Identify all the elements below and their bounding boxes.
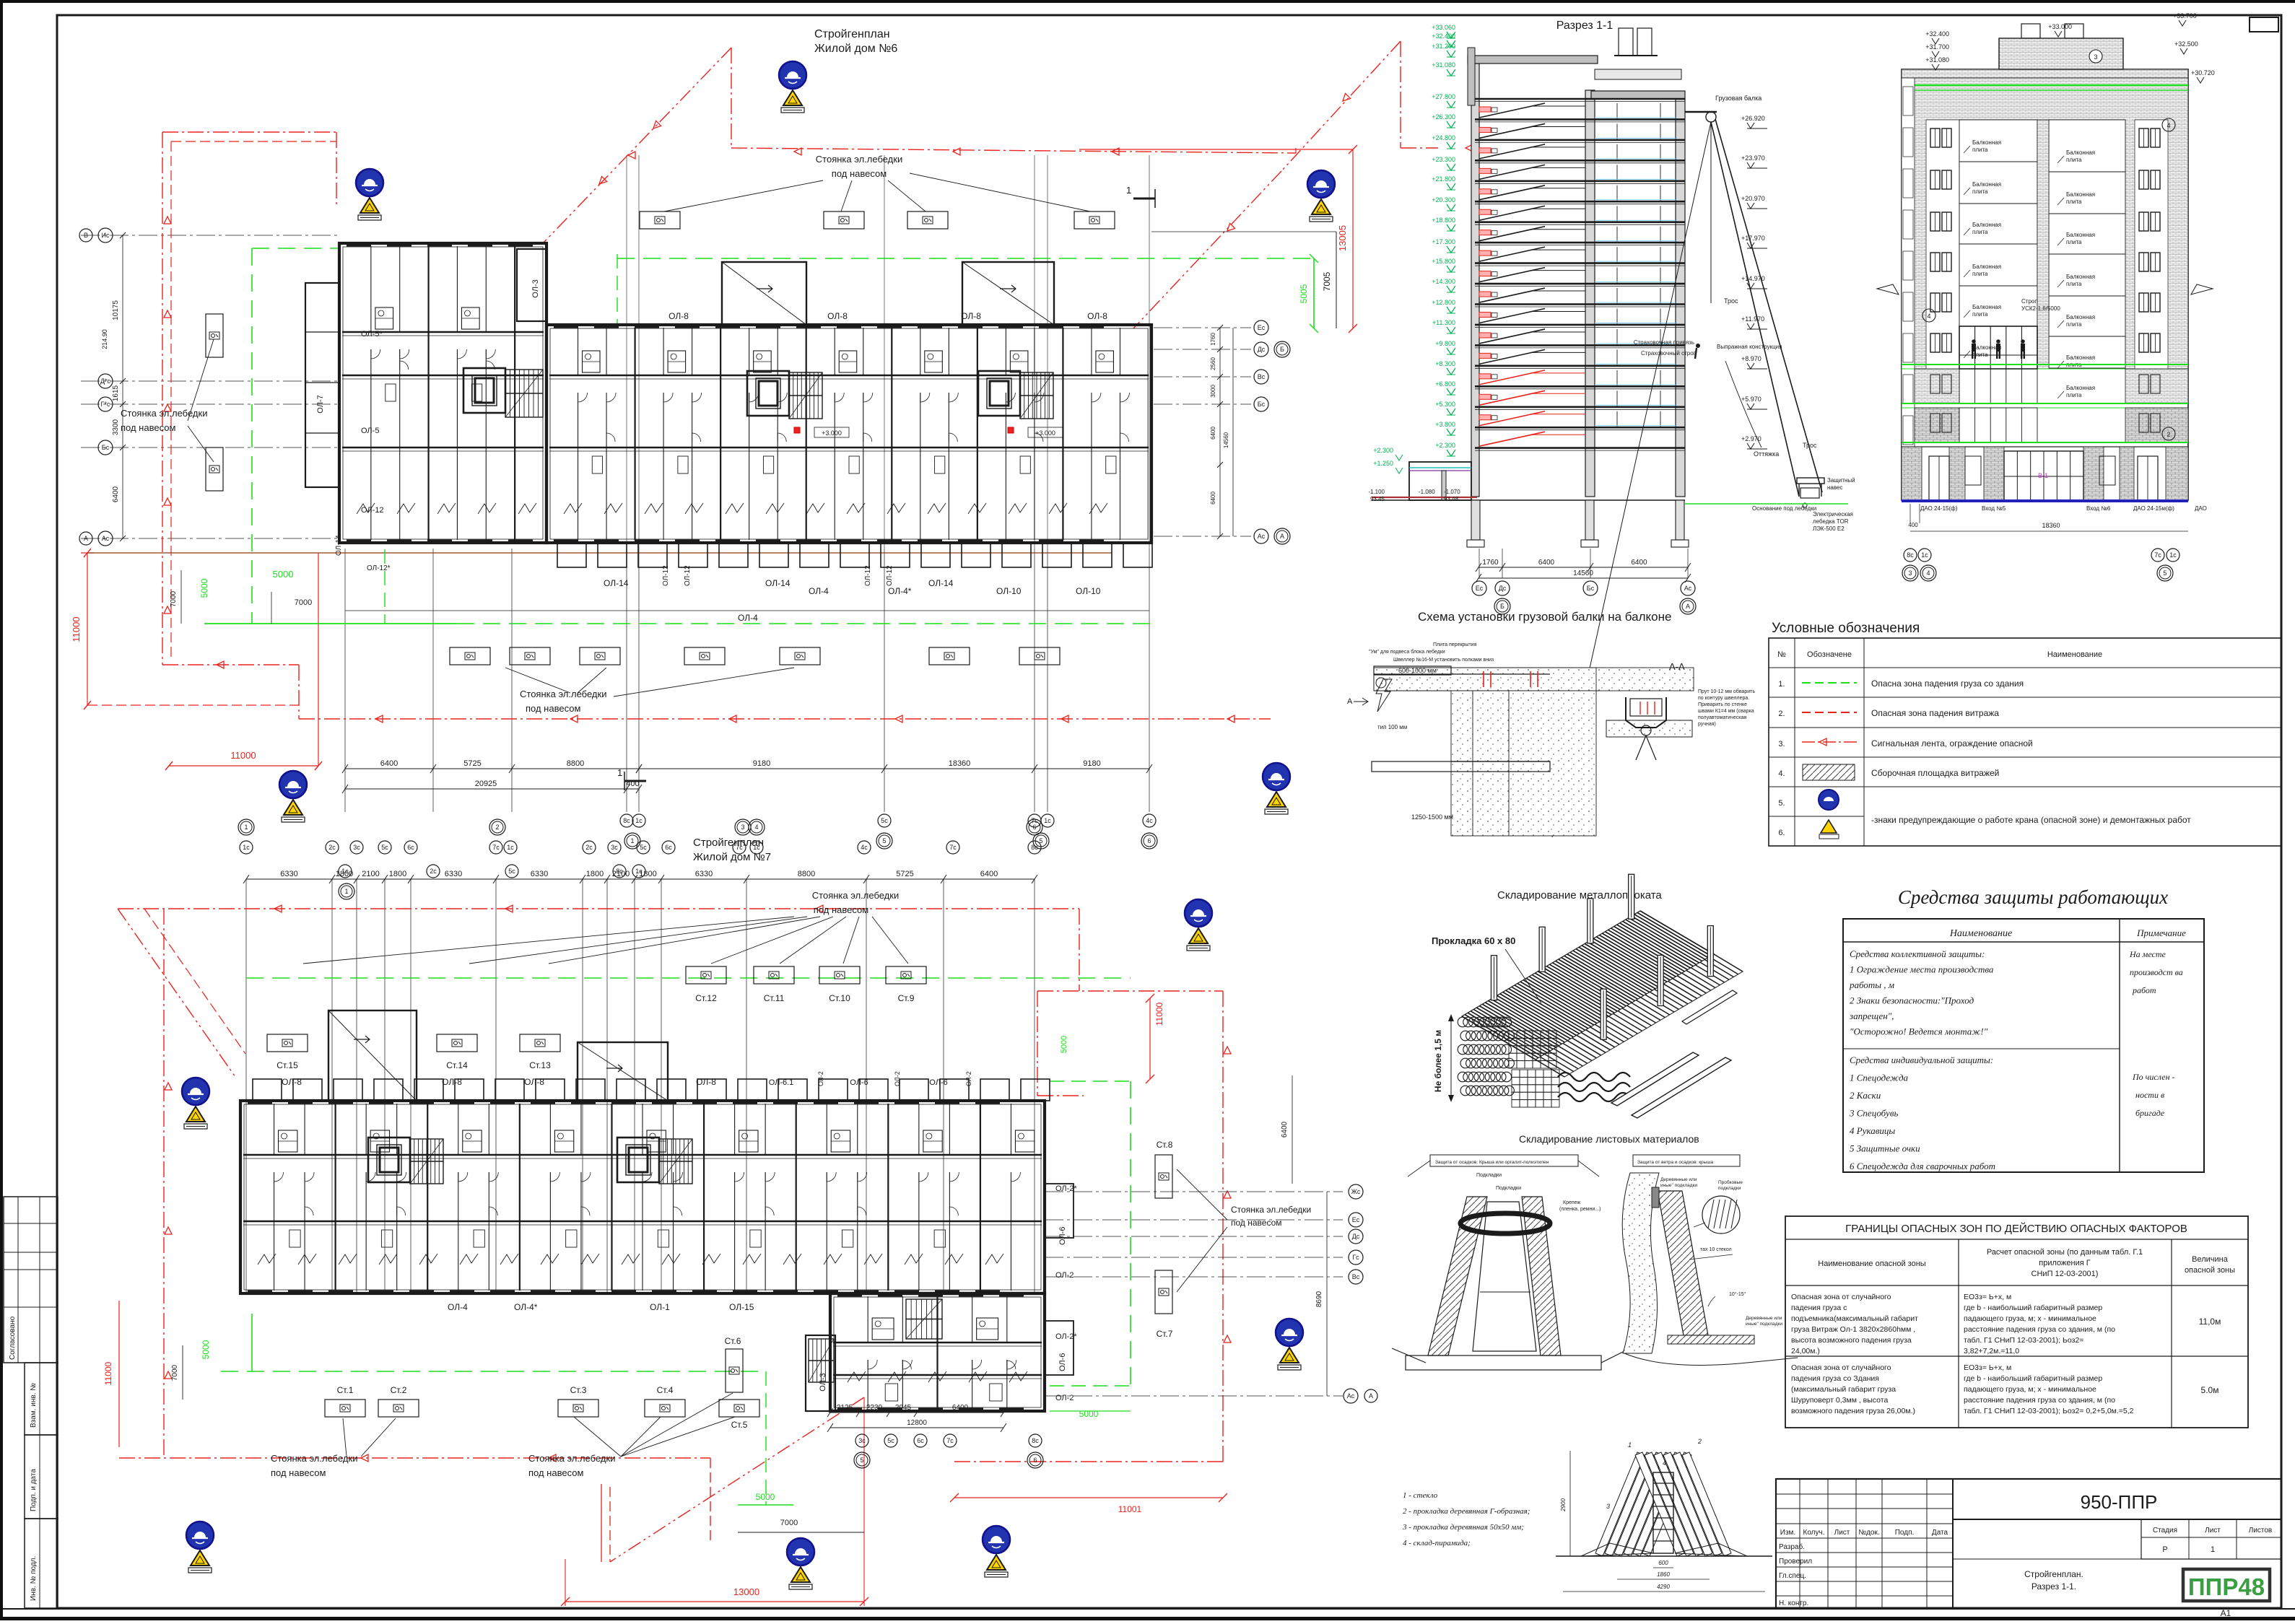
svg-text:Наименование опасной зоны: Наименование опасной зоны [1818,1260,1926,1268]
svg-text:9180: 9180 [753,759,770,768]
svg-text:5.: 5. [1778,799,1785,808]
svg-text:под навесом: под навесом [121,422,175,433]
svg-text:Складирование листовых материа: Складирование листовых материалов [1519,1133,1699,1145]
svg-text:4с: 4с [861,844,868,851]
svg-text:5000: 5000 [1060,1036,1068,1053]
svg-text:ОЛ-2: ОЛ-2 [1055,1394,1074,1402]
svg-text:под навесом: под навесом [528,1467,583,1478]
svg-text:лебедка TOR: лебедка TOR [1813,518,1849,525]
svg-text:5с: 5с [508,868,515,875]
svg-text:1250-1500 мм: 1250-1500 мм [1411,813,1453,821]
svg-text:2100: 2100 [612,870,630,878]
svg-text:+32.500: +32.500 [2174,40,2198,48]
svg-text:опасной зоны: опасной зоны [2185,1266,2235,1275]
svg-text:под навесом: под навесом [832,168,887,179]
svg-text:(максимальный габарит груза: (максимальный габарит груза [1791,1385,1896,1394]
svg-text:+3.800: +3.800 [1435,421,1455,428]
svg-text:падения груза со Здания: падения груза со Здания [1791,1374,1879,1383]
svg-text:ОЛ-2: ОЛ-2 [965,1071,972,1086]
svg-text:+14.300: +14.300 [1432,278,1455,285]
svg-text:7000: 7000 [295,598,312,607]
svg-text:13000: 13000 [733,1586,759,1597]
svg-text:+33.700: +33.700 [2173,12,2197,19]
svg-text:под навесом: под навесом [814,904,868,915]
svg-text:Защита от ветра и осадков: кры: Защита от ветра и осадков: крыша [1637,1160,1714,1165]
svg-text:Приварить по стенке: Приварить по стенке [1698,702,1747,707]
svg-text:Гл.спец.: Гл.спец. [1779,1572,1806,1580]
svg-text:Ас: Ас [1258,533,1266,540]
svg-text:Опасная зона от случайного: Опасная зона от случайного [1791,1293,1891,1301]
svg-text:93.48: 93.48 [1444,496,1459,502]
svg-text:Не более 1,5 м: Не более 1,5 м [1433,1030,1443,1092]
svg-text:В: В [84,232,88,239]
svg-text:Балконная: Балконная [2066,149,2095,156]
svg-text:1800: 1800 [389,870,406,878]
svg-text:высота возможного падения груз: высота возможного падения груза [1791,1336,1912,1345]
svg-text:1с: 1с [753,844,760,851]
svg-text:2с: 2с [430,868,437,875]
svg-text:Наименование: Наименование [2047,650,2102,659]
svg-text:1: 1 [630,837,634,844]
svg-text:4: 4 [1663,1459,1666,1467]
svg-text:Балконная: Балконная [1972,304,2001,310]
svg-text:Средства коллективной защиты:: Средства коллективной защиты: [1850,948,1985,959]
svg-text:2с: 2с [585,844,593,851]
svg-text:ОЛ-3: ОЛ-3 [531,279,540,297]
svg-text:Ст.11: Ст.11 [764,993,785,1003]
svg-text:5000: 5000 [1079,1409,1099,1419]
svg-text:600-1000 мм: 600-1000 мм [1398,667,1437,674]
svg-text:5.0м: 5.0м [2201,1385,2219,1395]
svg-text:плита: плита [2066,392,2082,398]
svg-text:+31.080: +31.080 [1432,61,1455,69]
svg-text:Деревянные или: Деревянные или [1660,1177,1697,1182]
svg-text:Наименование: Наименование [1949,928,2012,939]
svg-text:А: А [1347,697,1353,706]
svg-text:6.: 6. [1778,829,1785,837]
svg-text:ОЛ-4*: ОЛ-4* [888,586,912,596]
svg-text:6400: 6400 [1210,427,1216,440]
svg-text:А: А [1280,533,1284,540]
svg-text:+2.300: +2.300 [1373,447,1393,454]
svg-text:+24.800: +24.800 [1432,134,1455,141]
svg-text:Б: Б [1280,346,1284,353]
svg-text:600: 600 [1658,1560,1668,1566]
svg-text:где b - наибольший габаритный: где b - наибольший габаритный размер [1964,1374,2102,1383]
svg-text:4: 4 [754,824,758,831]
svg-text:Ст.6: Ст.6 [725,1336,741,1346]
svg-text:ОЛ-4: ОЛ-4 [738,613,758,623]
svg-text:УСК2-1,6/5000: УСК2-1,6/5000 [2021,305,2060,312]
svg-text:Защита от осадков: Крыша или о: Защита от осадков: Крыша или оргалит-пол… [1435,1160,1549,1165]
svg-text:5725: 5725 [463,759,481,768]
svg-text:5000: 5000 [199,578,209,598]
svg-text:5 Защитные очки: 5 Защитные очки [1850,1143,1920,1154]
svg-text:Стоянка эл.лебедки: Стоянка эл.лебедки [271,1453,357,1464]
svg-text:Н. контр.: Н. контр. [1779,1599,1808,1607]
svg-text:11000: 11000 [71,616,82,642]
svg-text:Условные обозначения: Условные обозначения [1772,621,1920,636]
svg-text:2с: 2с [328,844,336,851]
svg-text:+11.300: +11.300 [1432,319,1455,326]
svg-text:6400: 6400 [1210,492,1216,505]
svg-text:+15.800: +15.800 [1432,258,1455,265]
svg-text:Средства защиты работающих: Средства защиты работающих [1898,886,2168,908]
svg-text:9180: 9180 [1083,759,1100,768]
svg-text:Разраб.: Разраб. [1779,1542,1805,1551]
svg-text:5с: 5с [881,817,888,824]
svg-text:3с: 3с [353,844,360,851]
svg-text:Балконная: Балконная [1972,222,2001,228]
svg-text:8с: 8с [1031,844,1038,851]
svg-text:6330: 6330 [280,870,297,878]
svg-text:6400: 6400 [980,870,998,878]
svg-text:1: 1 [2211,1545,2215,1554]
svg-text:Балконная: Балконная [2066,274,2095,280]
svg-text:Б: Б [1500,603,1504,610]
svg-text:1800: 1800 [639,870,656,878]
svg-text:Электрическая: Электрическая [1813,511,1853,518]
svg-text:ОЛ-14: ОЛ-14 [928,578,954,588]
svg-text:+20.300: +20.300 [1432,196,1455,204]
svg-text:ОЛ-8: ОЛ-8 [282,1077,302,1087]
svg-text:Прут 10-12 мм обварить: Прут 10-12 мм обварить [1698,689,1755,694]
svg-text:Строп: Строп [2021,298,2038,305]
svg-text:5: 5 [2163,569,2166,577]
svg-text:+8.970: +8.970 [1741,355,1761,362]
svg-text:5000: 5000 [201,1340,211,1359]
svg-text:Величина: Величина [2192,1255,2229,1264]
svg-text:2: 2 [2166,431,2170,438]
svg-text:тах 10 стекол: тах 10 стекол [1700,1247,1732,1252]
svg-text:8с: 8с [1907,551,1914,559]
svg-text:+33.000: +33.000 [2048,23,2072,30]
svg-text:Оттяжка: Оттяжка [1754,450,1779,458]
svg-text:Швеллер №16-М установить полка: Швеллер №16-М установить полками вниз [1393,658,1494,663]
svg-text:11000: 11000 [230,750,256,761]
svg-text:тип 100 мм: тип 100 мм [1377,724,1407,730]
svg-text:3.: 3. [1778,740,1785,748]
svg-text:иные" подкладки: иные" подкладки [1746,1322,1782,1327]
svg-text:ОЛ-14: ОЛ-14 [335,535,343,556]
svg-text:2125: 2125 [837,1404,853,1412]
svg-text:Грузовая балка: Грузовая балка [1715,95,1761,102]
svg-text:1с: 1с [1921,551,1928,559]
svg-text:Стоянка эл.лебедки: Стоянка эл.лебедки [1231,1205,1311,1215]
svg-text:Трос: Трос [1803,442,1817,449]
svg-text:4с: 4с [1146,817,1153,824]
svg-text:Разрез 1-1.: Разрез 1-1. [2031,1581,2076,1592]
svg-text:3000: 3000 [1210,385,1216,398]
svg-text:5с: 5с [887,1437,894,1444]
svg-text:Прокладка 60 х 80: Прокладка 60 х 80 [1432,935,1515,946]
svg-text:ОЛ-12: ОЛ-12 [886,565,894,586]
svg-text:по контуру швеллера.: по контуру швеллера. [1698,696,1749,701]
svg-text:под навесом: под навесом [271,1467,326,1478]
svg-text:950-ППР: 950-ППР [2081,1491,2158,1513]
svg-text:2 Каски: 2 Каски [1850,1090,1881,1101]
svg-text:Ст.1: Ст.1 [337,1385,354,1395]
svg-text:ручная): ручная) [1698,722,1716,727]
svg-text:работы , м: работы , м [1849,979,1894,990]
svg-text:Стоянка эл.лебедки: Стоянка эл.лебедки [121,408,207,419]
svg-text:3: 3 [741,824,744,831]
svg-text:-1.070: -1.070 [1444,489,1460,495]
svg-text:Балконная: Балконная [1972,139,2001,146]
svg-text:падения груза с: падения груза с [1791,1304,1847,1312]
svg-text:Ст.4: Ст.4 [657,1385,674,1395]
svg-text:Обозначене: Обозначене [1807,650,1852,659]
svg-text:Подп.: Подп. [1895,1529,1915,1537]
svg-text:Подкладки: Подкладки [1476,1173,1502,1178]
svg-text:7с: 7с [949,844,957,851]
svg-text:СНиП 12-03-2001): СНиП 12-03-2001) [2031,1270,2099,1278]
svg-text:ППР48: ППР48 [2188,1573,2265,1600]
svg-text:4290: 4290 [1657,1584,1670,1590]
svg-text:работ: работ [2132,985,2156,995]
svg-text:1: 1 [617,767,622,778]
svg-text:8с: 8с [623,817,630,824]
svg-text:А-А: А-А [1669,661,1685,672]
svg-text:ОЛ-1: ОЛ-1 [650,1302,670,1312]
svg-text:1615: 1615 [112,385,120,401]
svg-text:+31.200: +31.200 [1432,43,1455,50]
svg-text:6: 6 [1032,824,1036,831]
svg-text:Сигнальная лента, ограждение о: Сигнальная лента, ограждение опасной [1871,738,2033,748]
svg-text:-1.100: -1.100 [1368,489,1385,495]
svg-text:+3.000: +3.000 [1035,429,1055,437]
svg-text:Балконная: Балконная [2066,314,2095,320]
svg-text:1.: 1. [1778,680,1785,689]
svg-text:ОЛ-2: ОЛ-2 [817,1071,824,1086]
svg-text:Опасная зона от случайного: Опасная зона от случайного [1791,1363,1891,1372]
svg-text:расстояние падения груза со зд: расстояние падения груза со здания, м (п… [1964,1325,2115,1334]
svg-text:+9.800: +9.800 [1435,340,1455,347]
svg-text:5: 5 [860,1457,863,1464]
svg-text:Согласовано: Согласовано [9,1316,17,1360]
svg-text:Ес: Ес [1258,324,1266,331]
svg-text:11000: 11000 [1154,1002,1164,1026]
svg-text:Основание под лебедки: Основание под лебедки [1752,505,1816,512]
svg-text:А: А [84,535,88,542]
svg-text:ЕО3з= Ь+х, м: ЕО3з= Ь+х, м [1964,1363,2011,1372]
svg-text:ности в: ности в [2135,1090,2164,1100]
svg-text:Бс: Бс [1587,585,1595,592]
svg-text:+11.970: +11.970 [1741,315,1764,323]
svg-text:7000: 7000 [780,1519,798,1527]
svg-text:214.90: 214.90 [101,329,108,349]
svg-text:+2.300: +2.300 [1435,442,1455,449]
svg-text:18360: 18360 [949,759,971,768]
svg-text:плита: плита [1972,271,1988,277]
svg-text:5005: 5005 [1299,284,1309,303]
svg-text:4: 4 [1927,313,1930,320]
svg-text:ОЛ-6: ОЛ-6 [1058,1353,1067,1371]
svg-text:7с: 7с [2154,551,2161,559]
svg-text:Ст.9: Ст.9 [898,993,915,1003]
svg-text:навес: навес [1827,484,1842,491]
svg-text:18360: 18360 [2042,522,2060,529]
svg-text:+23.970: +23.970 [1741,154,1765,162]
svg-text:ОЛ-10: ОЛ-10 [1076,586,1101,596]
svg-text:Ис: Ис [102,232,110,239]
svg-text:ОЛ-8: ОЛ-8 [1087,311,1107,321]
svg-text:6: 6 [1033,1457,1037,1464]
svg-text:Опасна зона падения груза со з: Опасна зона падения груза со здания [1871,678,2024,689]
svg-text:По числен -: По числен - [2132,1072,2175,1082]
svg-text:2 Знаки безопасности:"Проход: 2 Знаки безопасности:"Проход [1850,995,1974,1006]
svg-text:3: 3 [1908,569,1912,577]
svg-text:ОЛ-2: ОЛ-2 [894,1071,901,1086]
svg-text:Дс: Дс [1499,585,1507,592]
svg-text:подъемника(максимальный габари: подъемника(максимальный габарит [1791,1314,1918,1323]
svg-text:6330: 6330 [531,870,548,878]
svg-text:ОЛ-8: ОЛ-8 [669,311,689,321]
svg-text:Колуч.: Колуч. [1803,1529,1825,1537]
svg-text:полуавтоматическая: полуавтоматическая [1698,715,1746,720]
svg-text:Схема установки грузовой балки: Схема установки грузовой балки на балкон… [1418,610,1671,624]
svg-text:Изм.: Изм. [1780,1529,1795,1537]
svg-text:1760: 1760 [1210,333,1216,346]
svg-text:Примечание: Примечание [2136,927,2186,938]
svg-text:+5.300: +5.300 [1435,401,1455,408]
svg-text:ОЛ-2: ОЛ-2 [1055,1271,1074,1280]
svg-text:20925: 20925 [475,780,497,788]
svg-text:плита: плита [2066,321,2082,328]
svg-text:Ас: Ас [102,535,110,542]
svg-text:1с: 1с [243,844,250,851]
svg-text:ОЛ-8: ОЛ-8 [524,1077,544,1087]
svg-text:На месте: На месте [2129,949,2166,959]
svg-text:+17.970: +17.970 [1741,235,1765,242]
svg-text:1 Спецодежда: 1 Спецодежда [1850,1073,1909,1083]
svg-text:1с: 1с [635,817,643,824]
svg-text:Расчет опасной зоны (по данным: Расчет опасной зоны (по данным табл. Г.1 [1987,1248,2143,1257]
svg-text:5: 5 [882,837,886,844]
svg-text:8690: 8690 [1315,1291,1323,1307]
svg-text:плита: плита [2066,198,2082,205]
svg-text:6400: 6400 [380,759,398,768]
svg-text:+18.800: +18.800 [1432,217,1455,224]
svg-text:Ст.5: Ст.5 [731,1420,748,1430]
svg-text:+30.720: +30.720 [2191,69,2215,77]
svg-text:плита: плита [1972,188,1988,195]
svg-text:Балконная: Балконная [2066,232,2095,238]
svg-text:ОЛ-4: ОЛ-4 [809,586,829,596]
svg-text:Балконная: Балконная [2066,191,2095,198]
svg-text:плита: плита [1972,229,1988,235]
svg-text:производст ва: производст ва [2130,967,2183,977]
svg-text:5725: 5725 [896,870,913,878]
svg-text:ГРАНИЦЫ ОПАСНЫХ ЗОН ПО ДЕЙСТВИ: ГРАНИЦЫ ОПАСНЫХ ЗОН ПО ДЕЙСТВИЮ ОПАСНЫХ … [1845,1222,2187,1235]
svg-text:7000: 7000 [170,590,178,607]
svg-text:груза Витраж Ол-1 3820х2860hмм: груза Витраж Ол-1 3820х2860hмм , [1791,1325,1915,1334]
svg-text:ЕО3з= Ь+х, м: ЕО3з= Ь+х, м [1964,1293,2011,1301]
svg-text:1: 1 [244,824,248,831]
svg-text:плита: плита [1972,147,1988,153]
svg-text:ОЛ-12: ОЛ-12 [864,565,872,586]
svg-text:1760: 1760 [1482,559,1499,567]
svg-text:10°-15°: 10°-15° [1729,1291,1746,1297]
svg-text:Разрез 1-1: Разрез 1-1 [1556,19,1614,32]
svg-text:-1.080: -1.080 [1419,489,1435,495]
svg-text:ОЛ-6.1: ОЛ-6.1 [769,1078,794,1087]
svg-text:Гс: Гс [1352,1254,1359,1261]
svg-text:6330: 6330 [445,870,462,878]
svg-text:2230: 2230 [866,1404,883,1412]
svg-text:ОЛ-8: ОЛ-8 [827,311,848,321]
svg-text:7000: 7000 [171,1364,179,1381]
svg-text:Стоянка эл.лебедки: Стоянка эл.лебедки [528,1453,615,1464]
svg-text:Ст.14: Ст.14 [446,1060,468,1070]
svg-text:Ст.8: Ст.8 [1157,1140,1173,1150]
svg-text:+12.800: +12.800 [1432,299,1455,306]
svg-text:1: 1 [1126,185,1131,196]
svg-text:1с: 1с [507,844,514,851]
svg-text:ОЛ-4: ОЛ-4 [448,1302,468,1312]
svg-text:3с: 3с [858,1437,866,1444]
svg-text:+31.080: +31.080 [1925,56,1949,64]
svg-text:швами К1=4 мм (сварка: швами К1=4 мм (сварка [1698,709,1754,714]
svg-text:+32.400: +32.400 [1925,30,1949,38]
svg-text:запрещен",: запрещен", [1849,1010,1894,1021]
svg-text:5с: 5с [381,844,388,851]
svg-text:ДАО 24-15(ф): ДАО 24-15(ф) [1920,505,1958,512]
svg-text:Ес: Ес [1476,585,1484,592]
svg-text:ДАО 24-15м(ф): ДАО 24-15м(ф) [2133,505,2174,512]
svg-text:ОЛ-15: ОЛ-15 [729,1302,754,1312]
svg-text:7005: 7005 [1322,271,1332,291]
svg-text:Д*с: Д*с [100,377,111,385]
svg-text:А: А [1686,603,1690,610]
svg-text:6: 6 [1147,837,1151,844]
svg-text:5с: 5с [640,844,647,851]
svg-text:+1.250: +1.250 [1373,460,1393,467]
svg-text:ОЛ-14: ОЛ-14 [765,578,791,588]
svg-text:Вс: Вс [1258,373,1266,380]
svg-text:ОЛ-8: ОЛ-8 [442,1077,462,1087]
svg-text:ОЛ-6: ОЛ-6 [1058,1227,1067,1245]
svg-text:1с: 1с [1044,817,1051,824]
svg-text:расстояние падения груза со зд: расстояние падения груза со здания, м (п… [1964,1396,2115,1405]
svg-text:Г*с: Г*с [101,401,110,408]
svg-text:11,0м: 11,0м [2199,1317,2221,1327]
svg-text:Жс: Жс [1351,1188,1361,1195]
svg-text:табл. Г1 СНиП 12-03-2001); Ьоз: табл. Г1 СНиП 12-03-2001); Ьоз2= [1964,1336,2083,1345]
svg-text:Бс: Бс [1258,401,1266,408]
svg-text:ОЛ-12: ОЛ-12 [361,506,384,515]
svg-text:иные" подкладки: иные" подкладки [1660,1183,1697,1188]
svg-text:8с: 8с [1032,1437,1039,1444]
svg-text:+26.300: +26.300 [1432,113,1455,121]
svg-text:6400: 6400 [1281,1121,1289,1138]
svg-text:6 Спецодежда для сварочных раб: 6 Спецодежда для сварочных работ [1850,1161,1995,1171]
svg-text:4 Рукавицы: 4 Рукавицы [1850,1125,1895,1136]
svg-text:"Ум" для подвеса блока лебедки: "Ум" для подвеса блока лебедки [1369,649,1445,655]
svg-text:1: 1 [344,888,348,895]
svg-text:плита: плита [2066,281,2082,287]
svg-text:5000: 5000 [756,1492,775,1502]
svg-text:+5.970: +5.970 [1741,396,1761,403]
svg-text:24,00м.): 24,00м.) [1791,1347,1820,1355]
svg-text:ОЛ-12*: ОЛ-12* [367,564,391,572]
svg-text:Жилой дом №6: Жилой дом №6 [814,43,897,55]
svg-text:ОЛ-14: ОЛ-14 [604,578,629,588]
svg-text:Ст.15: Ст.15 [276,1060,298,1070]
svg-text:3: 3 [1606,1503,1610,1510]
svg-text:табл. Г1 СНиП 12-03-2001); Ьоз: табл. Г1 СНиП 12-03-2001); Ьоз2= 0,2+5,0… [1964,1407,2134,1415]
svg-text:8800: 8800 [798,870,815,878]
